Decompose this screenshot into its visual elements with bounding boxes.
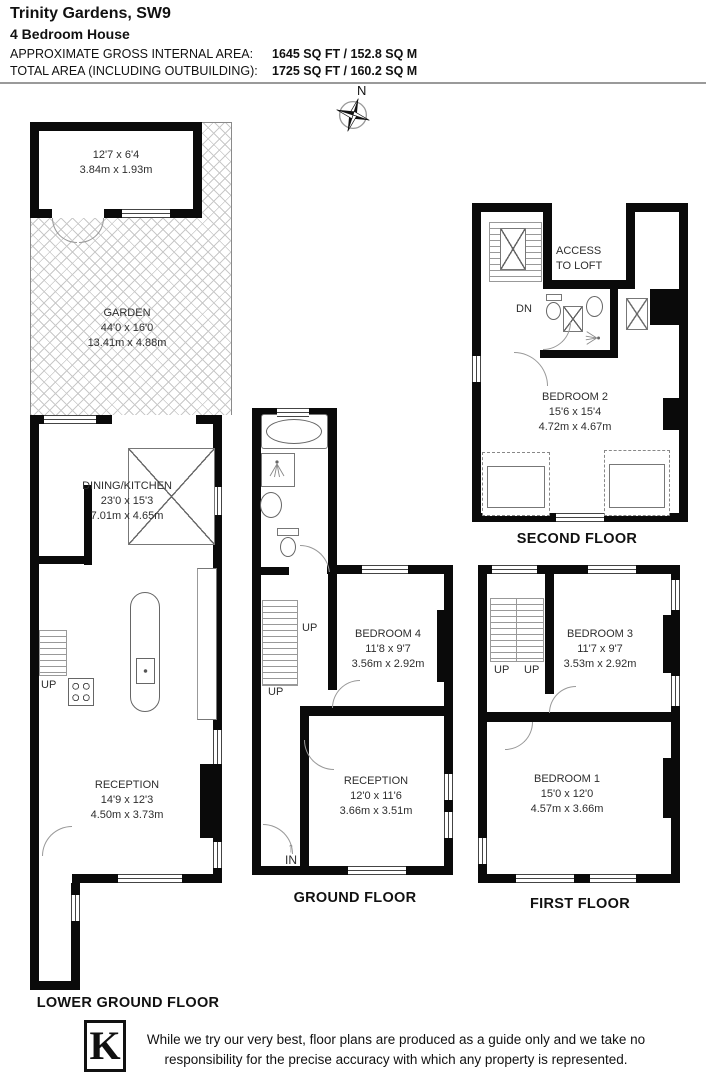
page-subtitle: 4 Bedroom House [10,26,130,42]
gf-reception-bay-window-1 [444,774,453,800]
bedroom4-reception-wall [300,706,453,716]
sf-eaves-block-outline [626,203,688,289]
sf-eaves-opening [635,280,679,289]
stove-hob [68,678,94,706]
outbuilding-window [122,209,170,218]
dormer-right-window-bay [609,464,665,508]
outbuilding-label: 12'7 x 6'4 3.84m x 1.93m [46,148,186,178]
sf-right-pier [663,398,680,430]
bedroom2-name: BEDROOM 2 [513,390,637,405]
kitchen-counter [197,568,217,720]
sf-center-window [556,513,604,522]
access-to-loft-line1: ACCESS [556,244,626,259]
bedroom3-dims-imperial: 11'7 x 9'7 [538,642,662,657]
gf-toilet-bowl [280,537,296,557]
lg-reception-dims-imperial: 14'9 x 12'3 [57,793,197,808]
ff-front-window-1 [516,874,574,883]
island-sink [136,658,155,684]
outbuilding-dims-metric: 3.84m x 1.93m [46,163,186,178]
gf-up-annotation-2: UP [268,686,283,698]
lg-side-window-2 [213,730,222,764]
bedroom4-label: BEDROOM 4 11'8 x 9'7 3.56m x 2.92m [326,627,450,673]
ff-rear-window-1 [492,565,537,574]
gf-staircase [262,600,298,686]
ff-rear-window-2 [588,565,636,574]
lg-internal-wall-horizontal [39,556,92,564]
corridor-window [71,895,80,921]
garden-name: GARDEN [57,306,197,321]
ff-front-window-2 [590,874,636,883]
ff-up-annotation-2: UP [524,664,539,676]
bedroom4-window [362,565,408,574]
ff-right-pier-upper [663,615,680,673]
lower-ground-vault-corridor [30,874,80,990]
garden-label: GARDEN 44'0 x 16'0 13.41m x 4.88m [57,306,197,352]
disclaimer-line1: While we try our very best, floor plans … [147,1032,645,1047]
agency-logo: K [84,1020,126,1072]
entrance-arrow-icon: ↑ [276,840,306,854]
dormer-left-window-bay [487,466,545,508]
disclaimer-text: While we try our very best, floor plans … [138,1030,654,1071]
outbuilding-dims-imperial: 12'7 x 6'4 [46,148,186,163]
sf-toilet-bowl [546,302,561,320]
lower-ground-floor-label: LOWER GROUND FLOOR [28,995,228,1011]
ff-staircase [490,598,544,662]
total-area-line: TOTAL AREA (INCLUDING OUTBUILDING): 1725… [10,64,417,78]
page-title: Trinity Gardens, SW9 [10,5,171,23]
bedroom4-dims-metric: 3.56m x 2.92m [326,657,450,672]
gf-hall-wall-stub [261,567,289,575]
outbuilding-door-opening [52,209,104,218]
bedroom1-name: BEDROOM 1 [505,772,629,787]
bedroom1-dims-imperial: 15'0 x 12'0 [505,787,629,802]
sf-dn-annotation: DN [516,303,532,315]
ff-up-annotation-1: UP [494,664,509,676]
access-to-loft-annotation: ACCESS TO LOFT [556,244,626,275]
sf-left-window [472,356,481,382]
sf-toilet-cistern [546,294,562,301]
dining-kitchen-dims-imperial: 23'0 x 15'3 [47,494,207,509]
gf-reception-front-window [348,866,406,875]
total-area-value: 1725 SQ FT / 160.2 SQ M [272,64,417,78]
lg-chimney-pier [200,764,222,838]
lg-up-annotation: UP [41,679,56,691]
gf-reception-dims-imperial: 12'0 x 11'6 [314,789,438,804]
bedroom3-label: BEDROOM 3 11'7 x 9'7 3.53m x 2.92m [538,627,662,673]
lg-rear-window [44,415,96,424]
dining-kitchen-label: DINING/KITCHEN 23'0 x 15'3 7.01m x 4.65m [47,479,207,525]
second-floor-label: SECOND FLOOR [477,531,677,547]
bedroom2-dims-metric: 4.72m x 4.67m [513,420,637,435]
lg-reception-label: RECEPTION 14'9 x 12'3 4.50m x 3.73m [57,778,197,824]
agency-logo-letter: K [89,1026,120,1066]
gross-internal-area-value: 1645 SQ FT / 152.8 SQ M [272,47,417,61]
gf-toilet-cistern [277,528,299,536]
bedroom1-label: BEDROOM 1 15'0 x 12'0 4.57m x 3.66m [505,772,629,818]
sf-bathroom-wall-bottom [540,350,618,358]
bedroom3-name: BEDROOM 3 [538,627,662,642]
bedroom2-label: BEDROOM 2 15'6 x 15'4 4.72m x 4.67m [513,390,637,436]
gf-reception-label: RECEPTION 12'0 x 11'6 3.66m x 3.51m [314,774,438,820]
garden-dims-imperial: 44'0 x 16'0 [57,321,197,336]
gross-internal-area-label: APPROXIMATE GROSS INTERNAL AREA: [10,47,272,61]
dining-kitchen-name: DINING/KITCHEN [47,479,207,494]
bedroom4-dims-imperial: 11'8 x 9'7 [326,642,450,657]
gf-reception-dims-metric: 3.66m x 3.51m [314,804,438,819]
bedroom3-dims-metric: 3.53m x 2.92m [538,657,662,672]
gf-basin [260,492,282,518]
ground-floor-label: GROUND FLOOR [255,890,455,906]
entrance-in-annotation: ↑ IN [276,840,306,866]
sf-shower-head-icon [584,328,604,348]
bedroom2-skylight-box [626,298,648,330]
disclaimer-line2: responsibility for the precise accuracy … [165,1052,628,1067]
kitchen-island [130,592,160,712]
gf-reception-bay-window-2 [444,812,453,838]
bedroom3-side-window-2 [671,676,680,706]
gf-reception-name: RECEPTION [314,774,438,789]
total-area-label: TOTAL AREA (INCLUDING OUTBUILDING): [10,64,272,78]
bedroom2-dims-imperial: 15'6 x 15'4 [513,405,637,420]
bedroom1-top-wall [487,712,671,722]
lg-reception-name: RECEPTION [57,778,197,793]
ff-staircase-divider [516,598,517,662]
garden-dims-metric: 13.41m x 4.88m [57,336,197,351]
bedroom1-side-window [478,838,487,864]
access-to-loft-line2: TO LOFT [556,259,626,274]
bathtub-inner [266,419,322,444]
gf-up-annotation-1: UP [302,622,317,634]
lg-side-window-3 [213,842,222,868]
lg-staircase [39,630,67,676]
compass-rose-icon [332,94,374,136]
shower-head-icon [266,458,288,480]
bedroom1-dims-metric: 4.57m x 3.66m [505,802,629,817]
bedroom4-name: BEDROOM 4 [326,627,450,642]
loft-hatch-box [500,228,526,270]
bedroom3-side-window [671,580,680,610]
lg-front-window [118,874,182,883]
ff-right-pier-lower [663,758,680,818]
garden-bifold-opening [112,415,196,424]
sf-basin [586,296,603,317]
gf-bath-window [277,408,309,417]
corridor-opening [39,874,72,883]
first-floor-label: FIRST FLOOR [480,896,680,912]
lg-reception-dims-metric: 4.50m x 3.73m [57,808,197,823]
entrance-in-text: IN [285,853,297,867]
header-divider [0,82,706,84]
floorplan-page: Trinity Gardens, SW9 4 Bedroom House APP… [0,0,706,1080]
sf-corner-pier [650,289,680,325]
gross-internal-area-line: APPROXIMATE GROSS INTERNAL AREA: 1645 SQ… [10,47,417,61]
dining-kitchen-dims-metric: 7.01m x 4.65m [47,509,207,524]
sf-bathroom-wall-right [610,289,618,358]
